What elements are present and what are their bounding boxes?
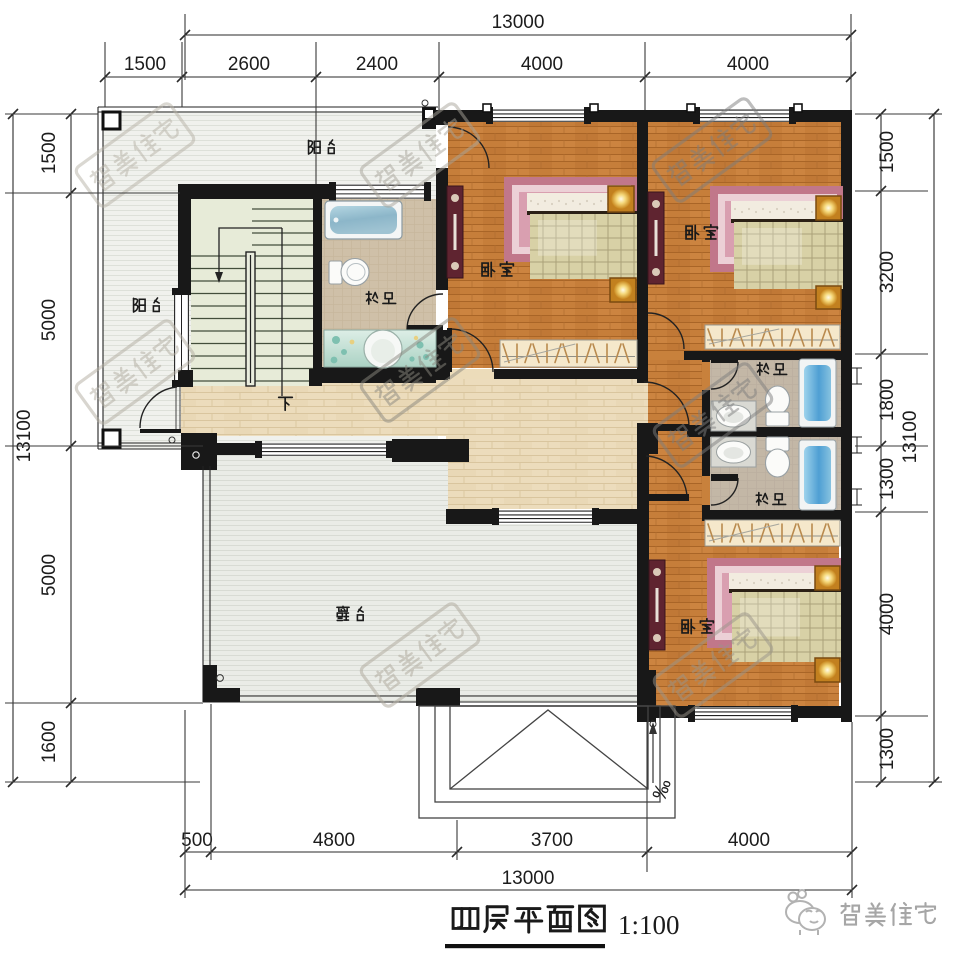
svg-text:13100: 13100	[14, 410, 35, 463]
svg-text:3700: 3700	[531, 830, 573, 851]
svg-text:2400: 2400	[356, 54, 398, 75]
svg-text:1300: 1300	[877, 728, 898, 770]
svg-text:5000: 5000	[39, 554, 60, 596]
svg-text:1500: 1500	[877, 131, 898, 173]
svg-text:3200: 3200	[877, 251, 898, 293]
svg-text:4000: 4000	[728, 830, 770, 851]
svg-text:1:100: 1:100	[618, 910, 680, 940]
svg-text:4000: 4000	[877, 593, 898, 635]
svg-text:1300: 1300	[877, 458, 898, 500]
svg-text:1500: 1500	[124, 54, 166, 75]
svg-text:4000: 4000	[521, 54, 563, 75]
svg-text:4800: 4800	[313, 830, 355, 851]
svg-text:1500: 1500	[39, 132, 60, 174]
svg-text:13000: 13000	[492, 12, 545, 33]
svg-text:500: 500	[181, 830, 213, 851]
svg-text:13000: 13000	[502, 868, 555, 889]
svg-text:1800: 1800	[877, 379, 898, 421]
svg-text:1600: 1600	[39, 721, 60, 763]
svg-text:4000: 4000	[727, 54, 769, 75]
svg-text:2600: 2600	[228, 54, 270, 75]
svg-text:5000: 5000	[39, 299, 60, 341]
svg-text:13100: 13100	[900, 411, 921, 464]
